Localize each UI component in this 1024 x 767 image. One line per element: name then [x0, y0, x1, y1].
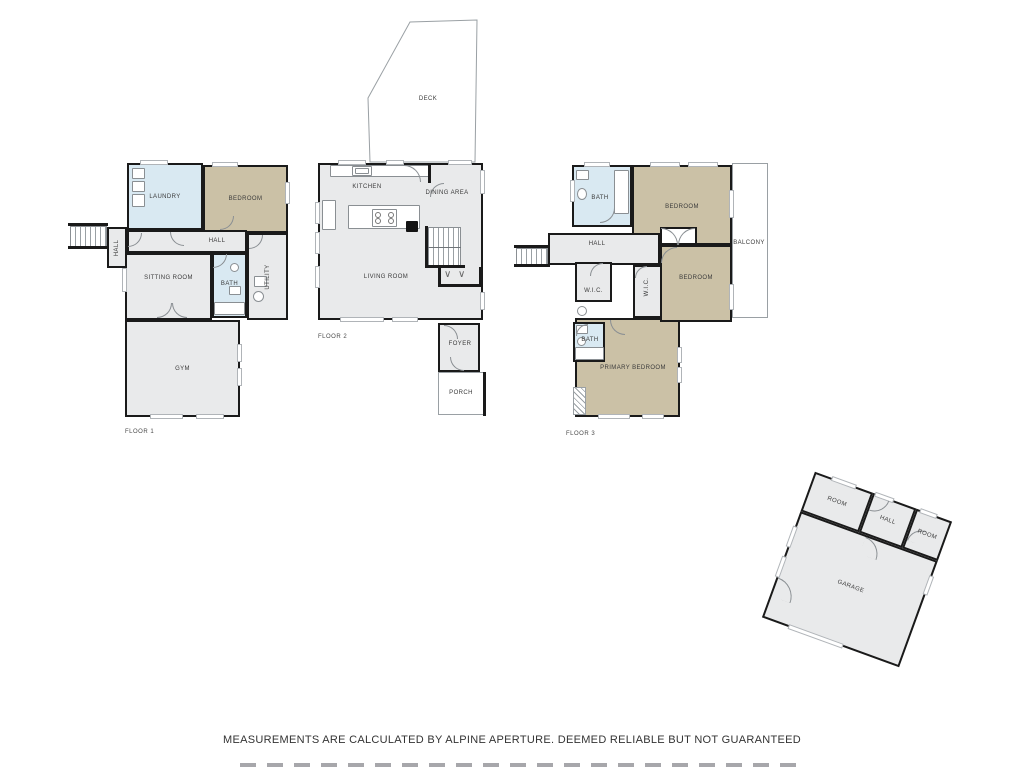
bath-bottom-label: BATH [581, 337, 598, 343]
wall-segment [425, 265, 465, 268]
fixture-appliance [406, 221, 418, 232]
window [338, 160, 366, 165]
gym-label: GYM [175, 366, 190, 372]
fixture-toilet [229, 286, 241, 295]
floor-2-caption: FLOOR 2 [318, 334, 347, 340]
bifold-door-icon: ∨ [458, 270, 470, 282]
window [584, 162, 610, 167]
window [315, 232, 320, 254]
window [729, 284, 734, 310]
window [386, 160, 404, 165]
window [480, 170, 485, 194]
floor-3-hall [548, 233, 660, 265]
stove-burner [375, 218, 381, 224]
fixture-tub [575, 347, 604, 360]
window [237, 368, 242, 386]
window [677, 347, 682, 363]
fixture-washer [132, 181, 145, 192]
window [140, 160, 168, 165]
laundry-label: LAUNDRY [149, 194, 180, 200]
fixture-dryer [132, 194, 145, 207]
fixture-tub [214, 302, 245, 315]
cutoff-text-remnant [240, 763, 800, 767]
floor-1-hall [127, 230, 247, 253]
kitchen-label: KITCHEN [352, 184, 381, 190]
fixture-washer [253, 291, 264, 302]
window [729, 190, 734, 218]
fixture-counter [322, 200, 336, 230]
window [285, 182, 290, 204]
window [642, 414, 664, 419]
fixture-sink [230, 263, 239, 272]
floor-3-caption: FLOOR 3 [566, 431, 595, 437]
sitting-room-label: SITTING ROOM [144, 275, 193, 281]
bath-label: BATH [221, 281, 238, 287]
bedroom-label: BEDROOM [229, 196, 263, 202]
fixture-tub [614, 170, 629, 214]
floor-1-caption: FLOOR 1 [125, 429, 154, 435]
sink-basin [355, 168, 369, 174]
window [315, 202, 320, 224]
window [650, 162, 680, 167]
wall-segment [514, 245, 550, 248]
balcony-label: BALCONY [733, 240, 764, 246]
wall-segment [514, 264, 550, 267]
window [196, 414, 224, 419]
hatch-steps [573, 387, 586, 415]
living-room-label: LIVING ROOM [364, 274, 408, 280]
wall-segment [68, 223, 108, 226]
stairs [70, 226, 107, 247]
bedroom-2-label: BEDROOM [679, 275, 713, 281]
wall-segment [483, 372, 486, 416]
window [677, 367, 682, 383]
wic-mid-label: W.I.C. [644, 278, 650, 297]
porch-label: PORCH [449, 390, 473, 396]
utility-label: UTILITY [265, 264, 271, 289]
window [340, 317, 384, 322]
floorplan-canvas: MEASUREMENTS ARE CALCULATED BY ALPINE AP… [0, 0, 1024, 767]
window [150, 414, 183, 419]
fixture-toilet [577, 188, 587, 200]
stairs [516, 248, 548, 265]
dining-area-label: DINING AREA [425, 190, 468, 196]
bedroom-1-label: BEDROOM [665, 204, 699, 210]
window [392, 317, 418, 322]
window [570, 180, 575, 202]
fixture-cabinet [132, 168, 145, 179]
bifold-door-icon: ∨ [444, 270, 456, 282]
stove-burner [388, 218, 394, 224]
disclaimer-text: MEASUREMENTS ARE CALCULATED BY ALPINE AP… [0, 734, 1024, 746]
wall-segment [68, 246, 108, 249]
fixture-sink [577, 306, 587, 316]
hall-label: HALL [209, 238, 226, 244]
hall-label: HALL [589, 241, 606, 247]
wic-left-label: W.I.C. [584, 288, 603, 294]
window [688, 162, 718, 167]
wall-segment [438, 284, 483, 287]
window [480, 292, 485, 310]
wall-segment [428, 163, 431, 183]
bath-top-label: BATH [591, 195, 608, 201]
window [212, 162, 238, 167]
window [122, 268, 127, 292]
window [237, 344, 242, 362]
window [315, 266, 320, 288]
primary-bedroom-label: PRIMARY BEDROOM [600, 365, 666, 371]
stairs-divider [428, 247, 461, 248]
fixture-vanity [576, 170, 589, 180]
window [448, 160, 472, 165]
window [598, 414, 630, 419]
entry-hall-label: HALL [114, 239, 120, 256]
deck-label: DECK [419, 96, 437, 102]
foyer-label: FOYER [449, 341, 472, 347]
